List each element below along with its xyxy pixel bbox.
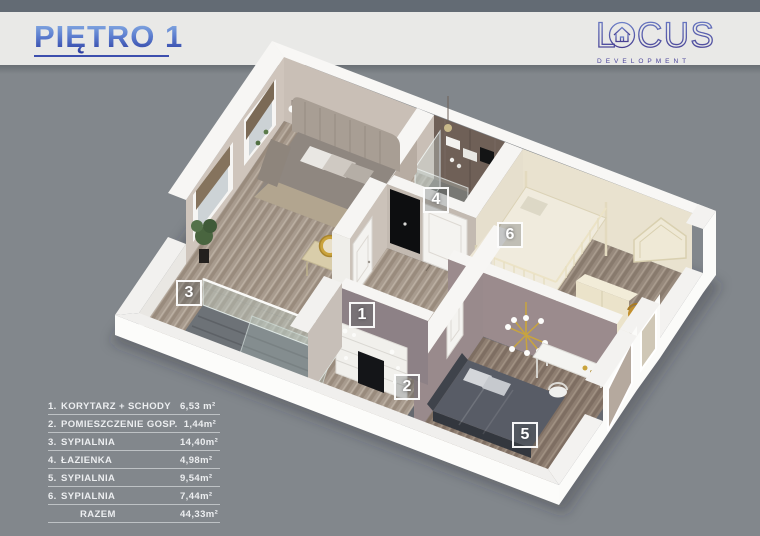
legend-row-number: 4. [48, 455, 61, 466]
legend-row-area: 4,98m² [180, 455, 220, 466]
legend-row-label: SYPIALNIA [61, 437, 174, 448]
desk-chair [549, 387, 567, 398]
room-number-badge: 3 [176, 280, 202, 306]
black-niche [390, 189, 420, 254]
page: PIĘTRO 1 L CUS DEVELOPMENT [0, 0, 760, 536]
legend-row-number: 5. [48, 473, 61, 484]
sill-plant [256, 141, 261, 146]
legend-row-area: 6,53 m² [180, 401, 220, 412]
legend-row-area: 7,44m² [180, 491, 220, 502]
room-number-badge: 4 [423, 187, 449, 213]
legend-row-number: 2. [48, 419, 61, 430]
desk-decor-gold [583, 366, 588, 371]
legend-row-number: 3. [48, 437, 61, 448]
legend-row: 6. SYPIALNIA 7,44m² [48, 491, 220, 505]
pendant-lamp [444, 124, 452, 132]
legend-total-value: 44,33m² [180, 509, 220, 520]
room-number-badge: 1 [349, 302, 375, 328]
plant-foliage [203, 219, 217, 233]
legend-row-area: 1,44m² [184, 419, 224, 430]
legend-row-area: 14,40m² [180, 437, 220, 448]
legend-row: 2. POMIESZCZENIE GOSP. 1,44m² [48, 419, 220, 433]
toiletry [457, 164, 461, 168]
room-number-badge: 5 [512, 422, 538, 448]
legend-total-label: RAZEM [80, 509, 174, 520]
legend-row: 1. KORYTARZ + SCHODY 6,53 m² [48, 401, 220, 415]
sill-plant [264, 130, 269, 135]
legend-row: 4. ŁAZIENKA 4,98m² [48, 455, 220, 469]
legend-row-label: SYPIALNIA [61, 491, 174, 502]
legend-row-label: ŁAZIENKA [61, 455, 174, 466]
legend-row: 3. SYPIALNIA 14,40m² [48, 437, 220, 451]
legend-total-row: RAZEM 44,33m² [48, 509, 220, 523]
room-number-badge: 2 [394, 374, 420, 400]
legend-row-label: SYPIALNIA [61, 473, 174, 484]
area-legend: 1. KORYTARZ + SCHODY 6,53 m² 2. POMIESZC… [48, 401, 220, 527]
legend-row-number: 6. [48, 491, 61, 502]
room-number-badge: 6 [497, 222, 523, 248]
plant-foliage [191, 220, 203, 232]
legend-row-number: 1. [48, 401, 61, 412]
toiletry [450, 158, 454, 162]
plant-pot [199, 249, 209, 263]
legend-row-area: 9,54m² [180, 473, 220, 484]
legend-row-label: KORYTARZ + SCHODY [61, 401, 174, 412]
legend-rows: 1. KORYTARZ + SCHODY 6,53 m² 2. POMIESZC… [48, 401, 220, 505]
legend-row-label: POMIESZCZENIE GOSP. [61, 419, 178, 430]
legend-row: 5. SYPIALNIA 9,54m² [48, 473, 220, 487]
